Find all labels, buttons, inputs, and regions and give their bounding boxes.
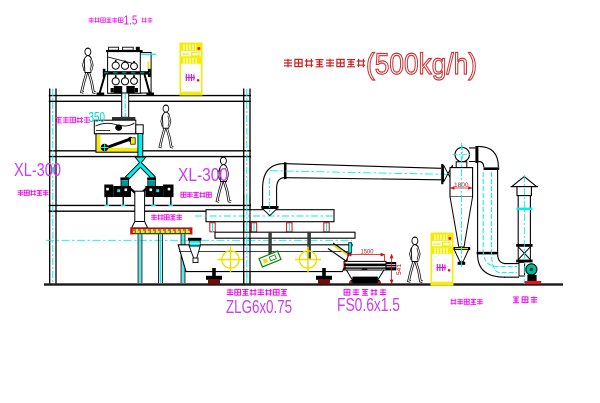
svg-text:350: 350 [89,110,106,126]
svg-text:XL-300: XL-300 [14,160,61,180]
svg-text:1.5: 1.5 [124,13,138,28]
svg-text:(500kg/h): (500kg/h) [366,48,477,81]
svg-text:FS0.6x1.5: FS0.6x1.5 [337,295,400,315]
svg-text:XL-300: XL-300 [178,165,228,185]
svg-text:541: 541 [397,263,403,275]
svg-text:1500: 1500 [361,248,374,255]
svg-text:ZLG6x0.75: ZLG6x0.75 [226,297,292,317]
